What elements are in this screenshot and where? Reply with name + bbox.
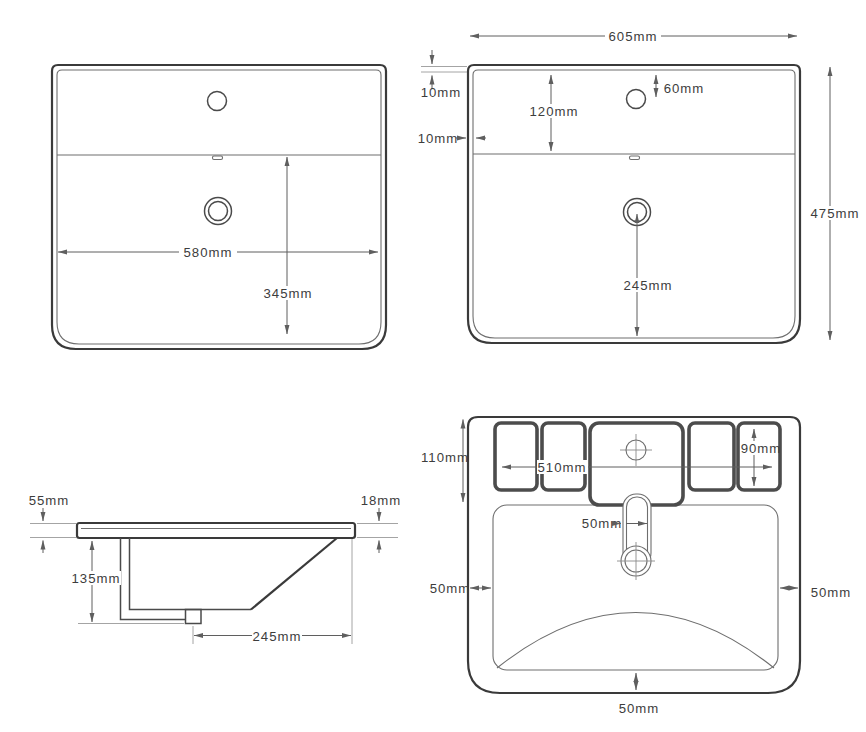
mounting-pad-3	[689, 423, 734, 490]
dim-label-bowl-depth: 135mm	[72, 571, 121, 586]
mounting-pad-1	[495, 423, 537, 490]
overflow-slot	[213, 156, 223, 160]
mounting-pad-2	[542, 423, 585, 490]
rim-slab	[77, 523, 355, 538]
dim-label-front-clearance: 50mm	[619, 701, 660, 716]
dim-label-block-height: 90mm	[741, 441, 782, 456]
faucet-hole	[208, 92, 227, 111]
dim-label-drain-offset: 345mm	[264, 286, 313, 301]
dim-label-rim-gap-side: 10mm	[418, 131, 459, 146]
drain-stub	[186, 610, 202, 624]
dim-label-overall-width: 605mm	[609, 29, 658, 44]
overflow-slot	[630, 156, 640, 160]
basin-inner-outline	[473, 70, 795, 338]
dim-label-overall-width: 580mm	[184, 245, 233, 260]
mounting-pad-center	[590, 423, 683, 505]
dim-label-drain-to-front: 245mm	[624, 278, 673, 293]
dim-label-drain-to-front-edge: 245mm	[253, 629, 302, 644]
plan-view-left: 580mm 345mm	[52, 65, 386, 349]
bowl-bottom-arc	[497, 613, 774, 669]
dim-label-back-edge: 55mm	[29, 493, 70, 508]
basin-outer-outline	[52, 65, 386, 349]
basin-dimension-diagram: 580mm 345mm 605mm 10mm 10mm 120mm 6	[0, 0, 866, 732]
drain-hole-inner	[209, 202, 228, 221]
dim-label-mount-depth: 110mm	[421, 450, 469, 465]
dim-label-front-edge: 18mm	[361, 493, 402, 508]
bowl-slope	[251, 538, 337, 610]
bowl-back-wall-inner	[130, 538, 252, 610]
diagram-canvas: 580mm 345mm 605mm 10mm 10mm 120mm 6	[0, 0, 866, 732]
dim-label-right-clearance: 50mm	[811, 585, 852, 600]
dim-label-rim-gap-top: 10mm	[421, 85, 462, 100]
dim-label-ledge-depth: 120mm	[530, 104, 579, 119]
faucet-hole	[627, 90, 646, 109]
basin-outer-outline	[468, 65, 800, 343]
dim-label-mount-width: 510mm	[538, 460, 587, 475]
basin-inner-outline	[57, 70, 381, 344]
dim-label-left-clearance: 50mm	[430, 581, 471, 596]
mounting-pad-4	[738, 423, 780, 490]
dim-label-depth: 475mm	[811, 206, 860, 221]
plan-view-right: 605mm 10mm 10mm 120mm 60mm 245mm 475mm	[418, 29, 860, 344]
dim-label-faucet-offset: 60mm	[664, 81, 705, 96]
side-section-view: 55mm 18mm 135mm 245mm	[29, 493, 402, 644]
bottom-view: 110mm 510mm 90mm 50mm 50mm 50mm 50mm	[421, 417, 851, 716]
